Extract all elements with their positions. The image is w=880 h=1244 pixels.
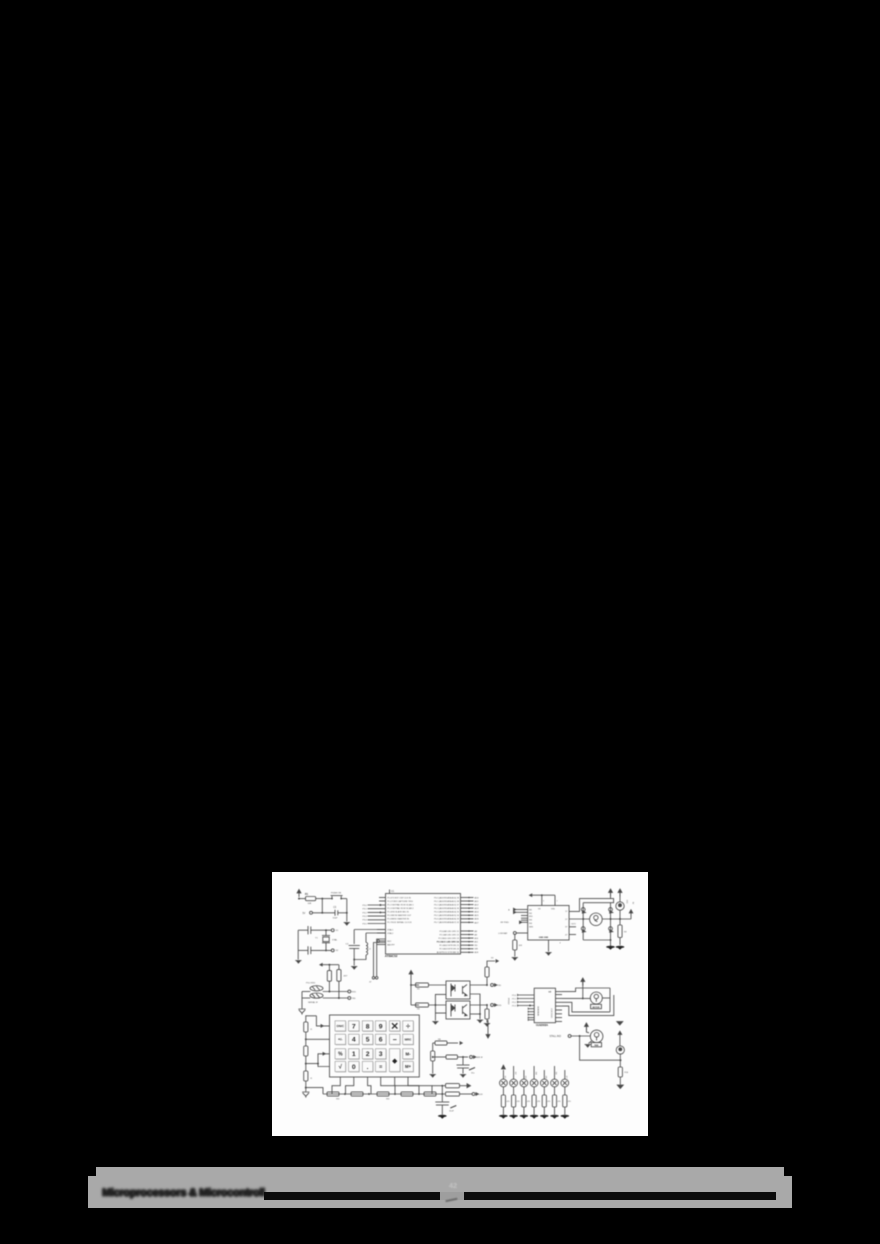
svg-text:P1.2 KEYPAD ROW SCAN 1: P1.2 KEYPAD ROW SCAN 1 — [387, 903, 414, 906]
svg-text:−: − — [393, 1037, 397, 1044]
svg-text:C3: C3 — [333, 907, 337, 909]
svg-text:470: 470 — [506, 1101, 509, 1103]
svg-text:MOTOR: MOTOR — [592, 1007, 600, 1009]
svg-text:ALE: ALE — [475, 951, 480, 954]
svg-text:D1: D1 — [504, 1076, 506, 1078]
svg-text:.: . — [367, 1064, 369, 1071]
svg-text:6: 6 — [379, 1037, 383, 1044]
svg-text:R: R — [311, 1078, 313, 1080]
svg-text:AD6: AD6 — [475, 918, 480, 921]
svg-text:D7: D7 — [565, 1076, 567, 1078]
svg-text:1C2C3C4C: 1C2C3C4C — [550, 1008, 552, 1019]
svg-text:4: 4 — [352, 1037, 356, 1044]
svg-text:RXD: RXD — [352, 991, 357, 993]
svg-text:470: 470 — [558, 1101, 561, 1103]
svg-text:U1: U1 — [391, 890, 395, 893]
svg-text:R10: R10 — [625, 1072, 630, 1074]
svg-text:1B2B3B4B: 1B2B3B4B — [537, 1006, 539, 1016]
svg-text:9: 9 — [379, 1023, 383, 1030]
svg-text:A8: A8 — [475, 930, 478, 933]
svg-text:PUSH ON: PUSH ON — [331, 893, 341, 895]
svg-text:ALE/PROG STROBE 30: ALE/PROG STROBE 30 — [437, 951, 460, 954]
svg-text:P0.4 (ADDR/DATA AD4) 35: P0.4 (ADDR/DATA AD4) 35 — [434, 911, 460, 914]
svg-text:P3.5: P3.5 — [363, 923, 368, 925]
svg-text:AD0: AD0 — [475, 896, 480, 899]
svg-text:IN1: IN1 — [529, 909, 532, 911]
svg-text:R6: R6 — [417, 1009, 421, 1011]
svg-text:R: R — [311, 1029, 313, 1031]
svg-text:RD: RD — [475, 945, 478, 947]
svg-text:A10: A10 — [475, 937, 480, 940]
svg-text:4K7: 4K7 — [344, 976, 349, 978]
svg-text:P3.1: P3.1 — [363, 909, 368, 911]
svg-text:C4: C4 — [346, 944, 350, 946]
svg-text:5V: 5V — [632, 902, 634, 905]
svg-text:J2: J2 — [369, 982, 372, 984]
svg-text:P2.1: P2.1 — [512, 998, 516, 1000]
svg-text:5: 5 — [366, 1037, 370, 1044]
svg-text:AT89C52: AT89C52 — [385, 954, 398, 958]
svg-text:AD7: AD7 — [475, 921, 480, 924]
svg-text:X1: X1 — [336, 930, 339, 932]
svg-text:RF PWD: RF PWD — [501, 922, 510, 924]
svg-text:M-: M- — [405, 1051, 411, 1056]
svg-text:5.4V: 5.4V — [479, 1094, 484, 1096]
svg-text:10uF: 10uF — [333, 917, 339, 919]
svg-text:P0.7 (ADDR/DATA AD7) 32: P0.7 (ADDR/DATA AD7) 32 — [434, 921, 460, 924]
svg-text:A: A — [508, 909, 510, 912]
svg-text:RS232: RS232 — [507, 998, 509, 1005]
svg-text:ULN2003A: ULN2003A — [536, 1024, 548, 1027]
svg-text:D2: D2 — [514, 1072, 516, 1074]
svg-text:IN3: IN3 — [529, 920, 532, 922]
svg-text:5: 5 — [543, 901, 544, 903]
svg-text:IN4: IN4 — [529, 923, 532, 925]
svg-text:10u: 10u — [471, 1073, 475, 1075]
svg-text:=: = — [379, 1064, 382, 1070]
svg-text:X2: X2 — [336, 950, 339, 952]
svg-text:IN2: IN2 — [529, 913, 532, 915]
svg-text:XTAL: XTAL — [332, 938, 338, 941]
svg-text:P2.4/A12 MTR EN 25: P2.4/A12 MTR EN 25 — [439, 944, 460, 947]
svg-text:P0.1 (ADDR/DATA AD1) 38: P0.1 (ADDR/DATA AD1) 38 — [434, 900, 460, 903]
svg-text:470: 470 — [517, 1101, 520, 1103]
svg-text:P2.0: P2.0 — [512, 995, 516, 997]
svg-text:P2.1/A9 LED DRV 22: P2.1/A9 LED DRV 22 — [439, 933, 459, 936]
svg-text:WR: WR — [475, 949, 479, 951]
svg-text:P2.2: P2.2 — [512, 1002, 516, 1004]
svg-text:470: 470 — [527, 1101, 530, 1103]
svg-text:P1.1/T2EX CAPTURE TRIG: P1.1/T2EX CAPTURE TRIG — [387, 900, 413, 903]
svg-text:P1.5/MOSI MASTER OUT: P1.5/MOSI MASTER OUT — [387, 914, 412, 917]
svg-text:P0.5 (ADDR/DATA AD5) 34: P0.5 (ADDR/DATA AD5) 34 — [434, 914, 460, 917]
svg-text:L1: L1 — [369, 949, 372, 951]
svg-text:EN1: EN1 — [529, 916, 533, 918]
svg-text:5V: 5V — [491, 958, 494, 960]
svg-text:TXD: TXD — [497, 985, 502, 987]
svg-text:P0.3 (ADDR/DATA AD3) 36: P0.3 (ADDR/DATA AD3) 36 — [434, 907, 460, 910]
svg-text:7: 7 — [352, 1023, 356, 1030]
svg-text:%: % — [338, 1052, 343, 1058]
svg-text:MRC: MRC — [405, 1037, 413, 1041]
svg-text:VER IF: VER IF — [476, 1057, 483, 1059]
svg-text:470: 470 — [537, 1101, 540, 1103]
svg-text:P2.5/A13 MTR EN 26: P2.5/A13 MTR EN 26 — [439, 948, 460, 951]
svg-text:P2.2/A10 LED DRV 23: P2.2/A10 LED DRV 23 — [438, 937, 460, 940]
svg-text:330: 330 — [336, 1099, 340, 1101]
svg-text:÷: ÷ — [406, 1022, 410, 1031]
svg-text:TXD: TXD — [352, 998, 357, 1000]
svg-text:P2.0/A8 LED DRV 21: P2.0/A8 LED DRV 21 — [439, 930, 459, 933]
svg-text:P3.2: P3.2 — [363, 912, 368, 914]
svg-text:470: 470 — [547, 1101, 550, 1103]
svg-text:P3.3: P3.3 — [363, 916, 368, 918]
svg-text:P3.0 RXD: P3.0 RXD — [306, 982, 316, 984]
svg-text:R1: R1 — [305, 893, 309, 896]
svg-text:P1.3 KEYPAD ROW SCAN 2: P1.3 KEYPAD ROW SCAN 2 — [387, 907, 414, 910]
svg-text:ON/C: ON/C — [337, 1024, 345, 1028]
svg-text:AD2: AD2 — [475, 904, 480, 907]
svg-text:SEN: SEN — [529, 926, 534, 928]
svg-text:0: 0 — [352, 1064, 356, 1071]
svg-text:P1.7/SCK SERIAL CLOCK: P1.7/SCK SERIAL CLOCK — [387, 921, 412, 924]
svg-text:P3.0: P3.0 — [363, 905, 368, 907]
svg-text:P0.2 (ADDR/DATA AD2) 37: P0.2 (ADDR/DATA AD2) 37 — [434, 903, 460, 906]
svg-text:8: 8 — [366, 1023, 370, 1030]
svg-text:10K: 10K — [308, 903, 312, 905]
svg-text:D6: D6 — [555, 1072, 557, 1074]
svg-text:330: 330 — [386, 1099, 390, 1101]
svg-text:XTAL1: XTAL1 — [387, 928, 394, 931]
svg-text:5V: 5V — [303, 913, 306, 915]
svg-text:P3.4: P3.4 — [363, 920, 368, 922]
svg-text:P2.3: P2.3 — [512, 1005, 516, 1007]
svg-text:AD1: AD1 — [475, 900, 480, 903]
svg-text:R5: R5 — [417, 989, 421, 991]
svg-text:M+: M+ — [405, 1064, 412, 1069]
svg-text:P2.3/A11 LED DRV 24: P2.3/A11 LED DRV 24 — [437, 940, 460, 943]
svg-text:P1.6/MISO MASTER IN: P1.6/MISO MASTER IN — [387, 918, 409, 921]
svg-text:A11: A11 — [475, 941, 479, 944]
svg-text:Y1: Y1 — [315, 938, 318, 940]
svg-text:P1.0/T2 EXT CNT CLK IN: P1.0/T2 EXT CNT CLK IN — [387, 897, 411, 899]
svg-text:10K: 10K — [519, 945, 523, 947]
svg-text:+/-: +/- — [338, 1038, 343, 1042]
svg-text:2: 2 — [366, 1051, 370, 1058]
svg-text:FAN: FAN — [595, 1044, 599, 1047]
svg-text:D5: D5 — [545, 1076, 547, 1078]
svg-text:AD3: AD3 — [475, 907, 480, 910]
svg-text:EA/VPP: EA/VPP — [387, 943, 395, 946]
svg-text:1: 1 — [352, 1051, 356, 1058]
svg-text:RXD: RXD — [497, 1005, 502, 1007]
svg-text:10uF: 10uF — [449, 1111, 454, 1113]
svg-text:OUT2: OUT2 — [571, 924, 576, 926]
svg-text:1: 1 — [557, 901, 558, 903]
svg-text:STALL IND: STALL IND — [550, 1035, 562, 1038]
svg-text:4: 4 — [560, 943, 561, 945]
svg-text:D3: D3 — [524, 1076, 526, 1078]
svg-text:SERIAL IF: SERIAL IF — [308, 1001, 318, 1004]
svg-text:R9: R9 — [624, 932, 627, 934]
svg-text:A9: A9 — [475, 933, 478, 936]
svg-text:AD5: AD5 — [475, 914, 480, 917]
svg-text:AD4: AD4 — [475, 911, 480, 914]
svg-text:GND GND: GND GND — [539, 937, 549, 939]
svg-text:P0.6 (ADDR/DATA AD6) 33: P0.6 (ADDR/DATA AD6) 33 — [434, 918, 460, 921]
svg-text:XTAL2: XTAL2 — [387, 932, 394, 935]
svg-text:D4: D4 — [534, 1072, 536, 1074]
svg-text:LOW BAT: LOW BAT — [498, 932, 508, 935]
svg-text:LS1: LS1 — [626, 900, 628, 904]
svg-text:470: 470 — [568, 1101, 571, 1103]
svg-text:3: 3 — [379, 1051, 383, 1058]
svg-text:P1.4/SS SLAVE SEL IN: P1.4/SS SLAVE SEL IN — [387, 911, 409, 914]
svg-text:P0.0 (ADDR/DATA AD0) 39: P0.0 (ADDR/DATA AD0) 39 — [434, 896, 460, 899]
